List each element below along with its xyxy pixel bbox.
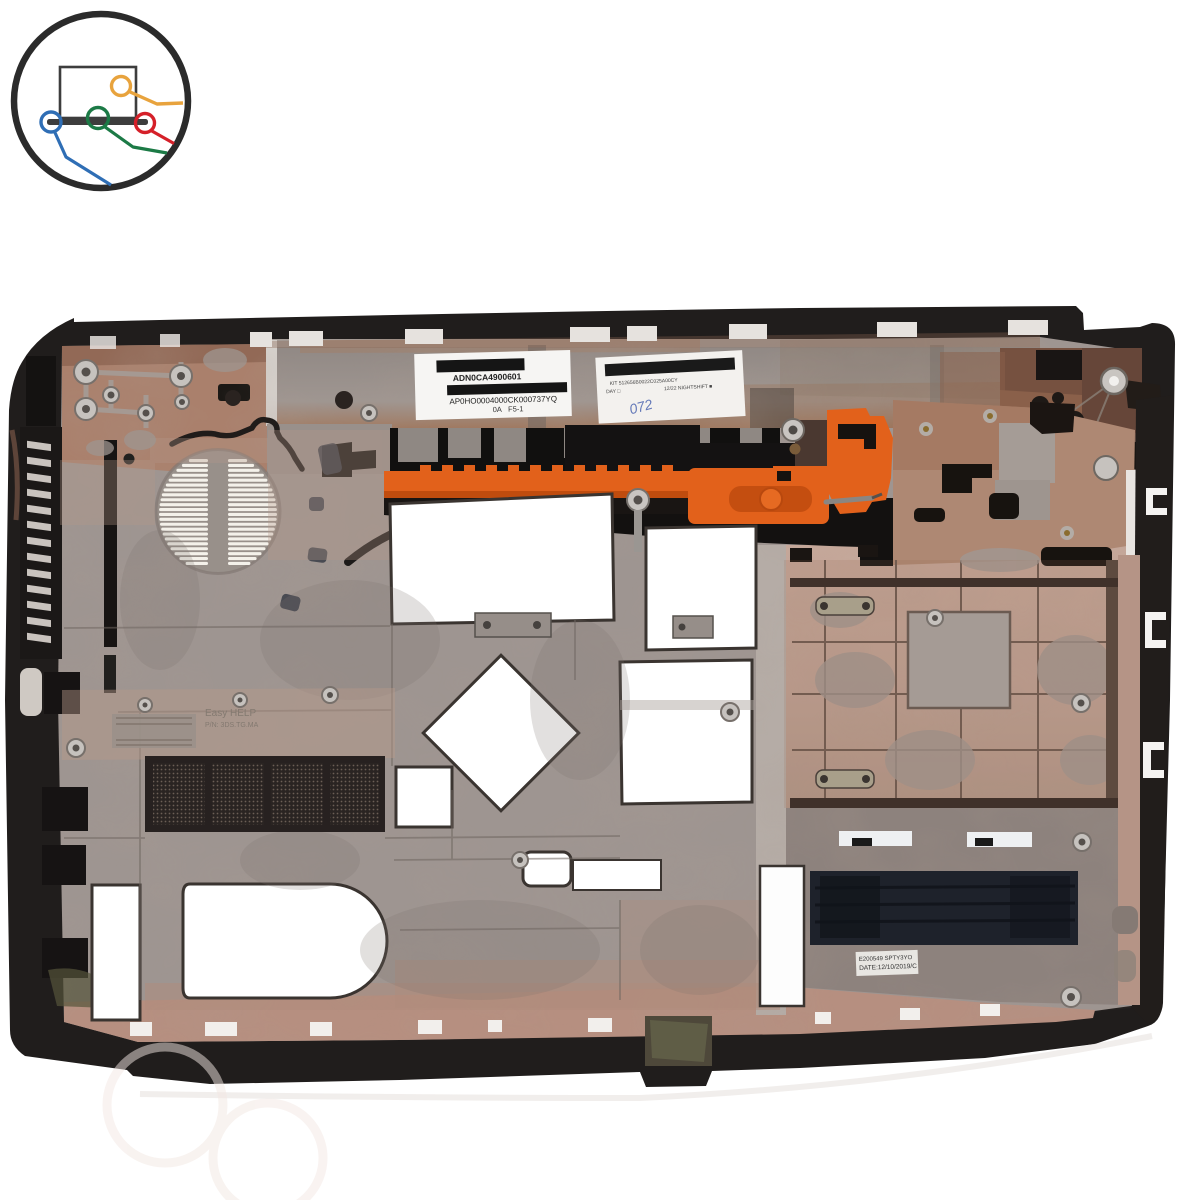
svg-text:ADN0CA4900601: ADN0CA4900601 xyxy=(453,371,522,383)
svg-text:0A F5-1: 0A F5-1 xyxy=(493,404,524,414)
svg-text:DAY □: DAY □ xyxy=(606,389,621,396)
svg-text:Easy HELP: Easy HELP xyxy=(205,708,256,719)
svg-text:P/N: 3DS.TG.MA: P/N: 3DS.TG.MA xyxy=(205,722,259,729)
